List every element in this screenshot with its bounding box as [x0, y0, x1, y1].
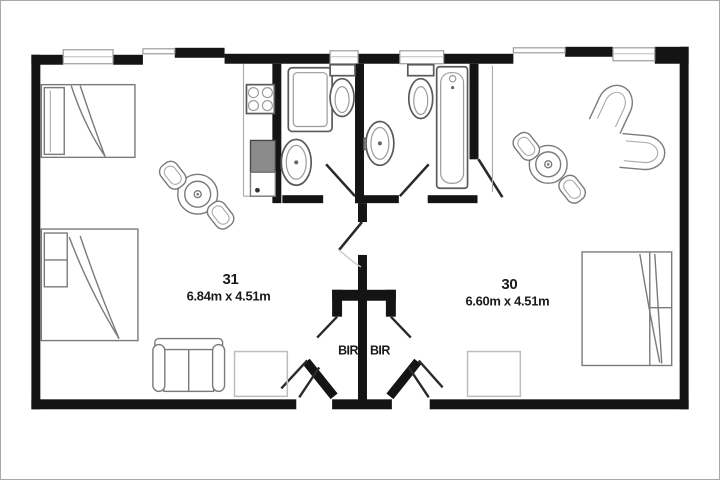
wall-top-seg: [655, 47, 689, 64]
wall-top-seg: [175, 48, 225, 58]
robe-stub-left: [332, 290, 342, 317]
bathroom-2: [364, 65, 468, 188]
interconnecting-door: [339, 222, 362, 250]
wall-bath2-right: [470, 64, 479, 160]
wall-top-seg: [225, 54, 331, 64]
room-31: [41, 85, 287, 397]
kitchen-cabinet: [250, 172, 275, 196]
bathroom-door-2: [400, 164, 429, 196]
robe-side-left: [317, 317, 337, 338]
floor-plan-drawing: 31 6.84m x 4.51m 30 6.60m x 4.51m BIR BI…: [1, 1, 719, 479]
wall-bath-bottom-mid: [355, 195, 399, 203]
room-30: [468, 66, 672, 397]
double-bed: [41, 229, 138, 341]
built-in-robe-label-left: BIR: [338, 344, 358, 358]
chair: [556, 172, 589, 206]
cooktop: [246, 85, 274, 114]
robe-side-right: [391, 317, 411, 338]
room-31-number: 31: [223, 271, 239, 288]
refrigerator: [250, 140, 275, 172]
bathroom-door-1: [326, 164, 355, 196]
double-bed: [582, 252, 672, 366]
chair: [156, 158, 189, 192]
floor-plan: 31 6.84m x 4.51m 30 6.60m x 4.51m BIR BI…: [0, 0, 720, 480]
room-30-dimensions: 6.60m x 4.51m: [465, 294, 549, 309]
wall-right: [680, 47, 689, 409]
sofa: [153, 339, 225, 392]
bathtub: [437, 67, 468, 188]
wall-top-seg: [444, 54, 514, 64]
wall-bath-divider: [355, 64, 364, 203]
room-31-dimensions: 6.84m x 4.51m: [187, 289, 271, 304]
door-swing-arc: [339, 250, 361, 267]
wall-top-seg: [113, 55, 143, 65]
rug: [235, 352, 288, 397]
toilet: [330, 65, 355, 117]
rug: [468, 352, 521, 397]
wall-bottom-right: [430, 399, 689, 409]
window: [513, 48, 565, 53]
wall-room-divider-upper: [358, 203, 367, 222]
entry-door-right: [409, 367, 429, 397]
wall-top-seg: [31, 55, 63, 65]
single-bed: [41, 85, 135, 158]
wall-bottom-left: [31, 399, 296, 409]
wall-bath2-bottom: [428, 195, 478, 203]
wall-top-seg: [565, 47, 613, 57]
robe-door-left: [281, 360, 307, 388]
doors: [326, 159, 502, 267]
kitchen: [243, 64, 275, 196]
window: [143, 49, 175, 54]
tub-chair: [589, 80, 638, 134]
built-in-robe-label-right: BIR: [370, 344, 390, 358]
wall-left: [31, 55, 40, 410]
wash-basin: [281, 139, 311, 185]
wash-basin: [364, 121, 394, 165]
entry-wall-right: [390, 361, 418, 396]
chair: [204, 198, 237, 232]
robe-stub-right: [386, 290, 396, 317]
robe-door-right: [419, 360, 443, 387]
shower: [288, 68, 332, 132]
toilet: [408, 65, 434, 119]
wall-top-seg: [358, 54, 400, 64]
bathroom-1: [281, 65, 355, 185]
wall-bath1-bottom: [282, 195, 323, 203]
wall-room-divider-lower: [358, 255, 367, 404]
tub-chair: [620, 134, 667, 172]
room-30-number: 30: [501, 276, 517, 293]
bath2-room-door: [479, 159, 503, 197]
